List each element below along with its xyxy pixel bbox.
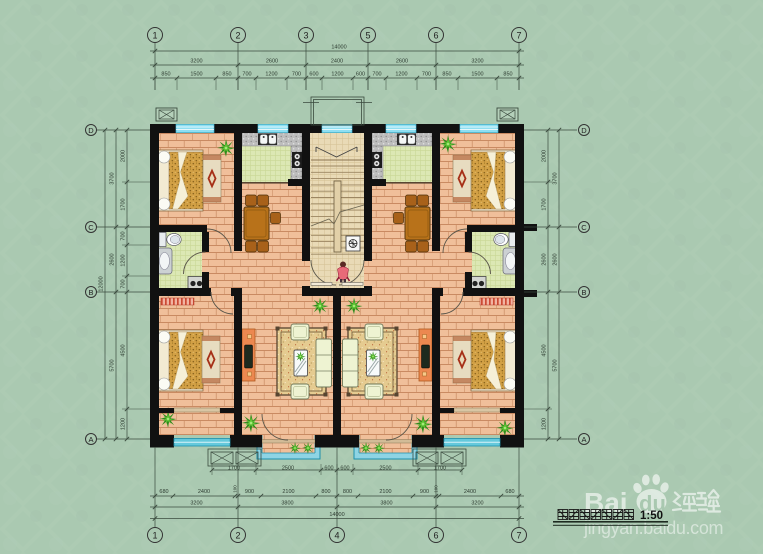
svg-text:6: 6 (433, 531, 438, 541)
svg-text:3700: 3700 (110, 172, 116, 184)
svg-text:1:50: 1:50 (640, 510, 663, 522)
svg-text:A: A (581, 435, 586, 444)
svg-text:700: 700 (242, 72, 251, 78)
svg-text:700: 700 (121, 279, 127, 288)
svg-text:850: 850 (442, 72, 451, 78)
svg-text:600: 600 (324, 466, 333, 472)
svg-text:600: 600 (356, 72, 365, 78)
svg-text:4500: 4500 (121, 344, 127, 356)
svg-text:600: 600 (340, 466, 349, 472)
svg-text:A: A (88, 435, 93, 444)
svg-text:D: D (581, 126, 587, 135)
svg-text:2600: 2600 (553, 253, 559, 265)
svg-text:680: 680 (505, 489, 514, 495)
svg-text:100: 100 (233, 485, 238, 493)
svg-text:1200: 1200 (395, 72, 407, 78)
svg-text:3200: 3200 (190, 59, 202, 65)
svg-text:2500: 2500 (379, 466, 391, 472)
svg-text:850: 850 (222, 72, 231, 78)
svg-text:800: 800 (321, 489, 330, 495)
svg-text:680: 680 (159, 489, 168, 495)
svg-text:1700: 1700 (542, 198, 548, 210)
svg-text:14000: 14000 (329, 512, 344, 518)
svg-text:700: 700 (372, 72, 381, 78)
svg-text:B: B (88, 288, 93, 297)
svg-text:3800: 3800 (380, 501, 392, 507)
svg-text:12000: 12000 (99, 276, 105, 291)
svg-text:800: 800 (343, 489, 352, 495)
svg-text:2600: 2600 (542, 253, 548, 265)
svg-text:3200: 3200 (471, 501, 483, 507)
svg-text:3700: 3700 (553, 172, 559, 184)
svg-text:7: 7 (516, 31, 521, 41)
svg-text:4500: 4500 (542, 344, 548, 356)
svg-text:1200: 1200 (121, 418, 127, 430)
svg-text:1200: 1200 (331, 72, 343, 78)
svg-text:2500: 2500 (282, 466, 294, 472)
svg-text:2000: 2000 (542, 150, 548, 162)
svg-text:6: 6 (433, 31, 438, 41)
svg-text:3800: 3800 (281, 501, 293, 507)
svg-text:2: 2 (235, 531, 240, 541)
svg-text:4: 4 (334, 531, 339, 541)
svg-text:850: 850 (503, 72, 512, 78)
svg-text:2000: 2000 (121, 150, 127, 162)
svg-text:1700: 1700 (434, 466, 446, 472)
svg-text:1500: 1500 (471, 72, 483, 78)
svg-text:C: C (581, 223, 587, 232)
svg-text:2400: 2400 (464, 489, 476, 495)
svg-text:C: C (88, 223, 94, 232)
svg-text:5700: 5700 (110, 359, 116, 371)
svg-text:900: 900 (420, 489, 429, 495)
svg-text:700: 700 (422, 72, 431, 78)
svg-text:600: 600 (309, 72, 318, 78)
svg-text:2600: 2600 (110, 253, 116, 265)
svg-text:2100: 2100 (282, 489, 294, 495)
svg-text:1200: 1200 (265, 72, 277, 78)
svg-text:100: 100 (434, 485, 439, 493)
svg-text:3200: 3200 (190, 501, 202, 507)
svg-text:14000: 14000 (331, 45, 346, 51)
svg-text:850: 850 (161, 72, 170, 78)
svg-text:1200: 1200 (542, 418, 548, 430)
svg-text:2400: 2400 (198, 489, 210, 495)
svg-text:1700: 1700 (121, 198, 127, 210)
svg-text:700: 700 (121, 231, 127, 240)
svg-text:700: 700 (292, 72, 301, 78)
svg-text:7: 7 (516, 531, 521, 541)
svg-text:1: 1 (152, 531, 157, 541)
svg-text:B: B (581, 288, 586, 297)
svg-text:2400: 2400 (331, 59, 343, 65)
svg-text:2: 2 (235, 31, 240, 41)
svg-text:D: D (88, 126, 94, 135)
svg-text:5700: 5700 (553, 359, 559, 371)
svg-text:1500: 1500 (190, 72, 202, 78)
svg-text:900: 900 (245, 489, 254, 495)
svg-text:1700: 1700 (228, 466, 240, 472)
svg-text:3200: 3200 (471, 59, 483, 65)
svg-text:2600: 2600 (396, 59, 408, 65)
svg-text:3: 3 (303, 31, 308, 41)
svg-text:1: 1 (152, 31, 157, 41)
svg-text:2100: 2100 (379, 489, 391, 495)
svg-text:1200: 1200 (121, 254, 127, 266)
svg-text:2600: 2600 (266, 59, 278, 65)
svg-text:5: 5 (365, 31, 370, 41)
